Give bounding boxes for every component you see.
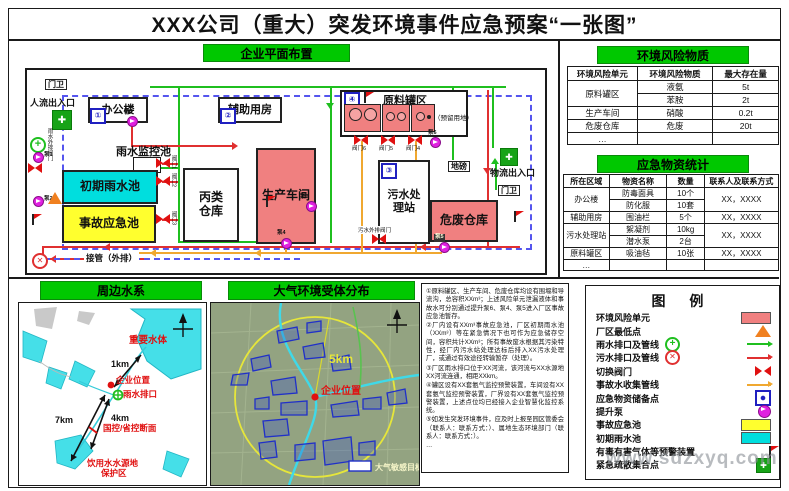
risk-cell: 5t (713, 81, 779, 94)
risk-cell: 20t (713, 120, 779, 133)
company-location-label: 企业位置 (115, 375, 151, 385)
legend-item: 提升泵 (586, 405, 779, 418)
outfall-dash-line (44, 258, 300, 260)
table-row: 原料罐区 吸油毡 10张 XX，XXXX (564, 248, 779, 260)
watermark: www.sdzxyq.com (606, 448, 778, 470)
distance-1km-label: 1km (111, 359, 129, 369)
pump-icon (281, 238, 292, 249)
supplies-cell (704, 260, 778, 271)
air-map-header: 大气环境受体分布 (228, 281, 415, 300)
sewage-outlet-icon: ✕ (32, 253, 48, 269)
supplies-cell: 围油栏 (609, 212, 667, 224)
page-title-bar: XXX公司（重大）突发环境事件应急预案“一张图” (8, 8, 781, 40)
drinking-water-label-1: 饮用水水源地 (86, 458, 139, 468)
valve6-label: 阀门6 (352, 147, 366, 153)
sewage-line-arrow-icon (747, 357, 771, 359)
risk-cell: 液氨 (637, 81, 713, 94)
risk-unit-swatch (741, 312, 771, 324)
rain-pipe-v4 (492, 86, 494, 148)
risk-table: 环境风险单元 环境风险物质 最大存在量 原料罐区 液氨 5t 苯胺 2t 生产车… (567, 66, 779, 145)
initial-rain-pool: 初期雨水池 (62, 170, 158, 204)
risk-cell: 生产车间 (568, 107, 638, 120)
pump4-label: 泵4 (277, 231, 286, 237)
weighbridge-label: 地磅 (448, 161, 470, 172)
switch-valve-icon (381, 135, 395, 145)
note-item: ⑤如发生突发环境事件，应及时上报至园区管委会（联系人：联系方式：）、属地生态环境… (426, 416, 564, 441)
table-row: … (568, 133, 779, 145)
supplies-point-icon: ③ (381, 163, 397, 179)
rain-line-arrow-icon (747, 343, 771, 345)
risk-cell (637, 133, 713, 145)
control-section-label: 国控/省控断面 (103, 423, 157, 433)
company-location-label: 企业位置 (320, 384, 361, 397)
legend-item: 环境风险单元 (586, 311, 779, 324)
rain-arrow-icon (491, 158, 499, 164)
rain-arrow-icon (326, 103, 334, 109)
supplies-cell: 10张 (667, 248, 704, 260)
switch-valve-icon (156, 158, 170, 168)
drinking-water-label-2: 保护区 (100, 468, 127, 478)
rain-outlet-icon: + (30, 137, 46, 153)
note-item: … (426, 442, 564, 450)
supplies-cell: XX，XXXX (704, 224, 778, 248)
sewage-out-valve-label: 污水外排阀门 (358, 226, 391, 234)
supplies-cell (667, 260, 704, 271)
people-entrance-label: 人流出入口 (30, 96, 75, 109)
supplies-cell: 10套 (667, 200, 704, 212)
reserved-land-label: （预留用地） (434, 112, 473, 122)
supplies-cell: 吸油毡 (609, 248, 667, 260)
switch-valve-icon (28, 163, 42, 173)
radius-5km-label: 5km (329, 352, 353, 366)
pump-icon (439, 242, 450, 253)
supplies-point-icon: ② (220, 108, 236, 124)
note-item: ④罐区设有XX套氨气监控预警装置，车间设有XX套氨气监控预警装置，厂界设有XX套… (426, 382, 564, 415)
lowest-point-icon (48, 192, 62, 204)
table-row: 生产车间 硝酸 0.2t (568, 107, 779, 120)
tank-circle (349, 108, 362, 121)
supplies-col: 物资名称 (609, 175, 667, 188)
accident-pool-swatch (741, 419, 771, 431)
rain-pipe-v2 (330, 86, 332, 243)
tank-group-1 (344, 104, 381, 132)
water-map-title: 周边水系 (97, 282, 145, 299)
air-map-svg: 企业位置 5km 大气敏感目标 (211, 303, 419, 485)
gatehouse-1-label: 门卫 (45, 79, 67, 90)
risk-col-amount: 最大存在量 (713, 67, 779, 81)
tank-group-3 (411, 104, 435, 132)
air-map: 企业位置 5km 大气敏感目标 (210, 302, 420, 486)
logistics-entrance-label: 物流出入口 (490, 166, 535, 179)
legend-item: 污水排口及管线 ✕ (586, 351, 779, 364)
important-water-label: 重要水体 (129, 334, 168, 346)
note-item: ①原料罐区、生产车间、危废仓库均设有围堰和导流沟，总容积XXm³；上述风险单元泄… (426, 288, 564, 321)
legend-item: 雨水排口及管线 + (586, 338, 779, 351)
supplies-cell: 防毒面具 (609, 188, 667, 200)
supplies-col: 数量 (667, 175, 704, 188)
legend-item: 事故应急池 (586, 418, 779, 431)
sewage-outlet-icon: ✕ (665, 350, 680, 365)
rain-outlet-label: 雨水排口 (123, 389, 157, 399)
legend-item: 初期雨水池 (586, 432, 779, 445)
accident-pool: 事故应急池 (62, 205, 156, 243)
pump5-label: 泵5 (434, 234, 445, 242)
supplies-cell: XX，XXXX (704, 212, 778, 224)
gas-warning-flag-icon (266, 196, 268, 207)
distance-4km-label: 4km (111, 413, 129, 423)
switch-valve-icon (156, 176, 170, 186)
lowest-point-icon (755, 325, 771, 337)
supplies-cell: 辅助用房 (564, 212, 610, 224)
pump-icon (430, 137, 441, 148)
table-row: 危废仓库 危废 20t (568, 120, 779, 133)
risk-cell: 硝酸 (637, 107, 713, 120)
tank-circle (416, 112, 425, 121)
supplies-cell: 10个 (667, 188, 704, 200)
supplies-table-header: 应急物资统计 (597, 155, 749, 173)
supplies-cell: 絮凝剂 (609, 224, 667, 236)
supplies-cell: XX，XXXX (704, 188, 778, 212)
pump6-label: 泵6 (428, 131, 437, 137)
risk-cell (713, 133, 779, 145)
distance-7km-label: 7km (55, 415, 73, 425)
pump3-label: 泵3 (300, 195, 309, 201)
supplies-table: 所在区域 物资名称 数量 联系人及联系方式 办公楼 防毒面具 10个 XX，XX… (563, 174, 779, 271)
page-title: XXX公司（重大）突发环境事件应急预案“一张图” (151, 9, 637, 39)
accident-arrow-icon (255, 249, 261, 257)
pump-icon (33, 196, 44, 207)
gatehouse-2-label: 门卫 (498, 185, 520, 196)
notes-panel: ①原料罐区、生产车间、危废仓库均设有围堰和导流沟，总容积XXm³；上述风险单元泄… (421, 283, 569, 473)
accident-pipe-v6 (361, 141, 363, 253)
supplies-table-title: 应急物资统计 (637, 156, 709, 173)
pump-icon (33, 152, 44, 163)
accident-line-arrow-icon (747, 384, 771, 386)
pump7-label: 泵7 (124, 110, 133, 116)
risk-cell: 苯胺 (637, 94, 713, 107)
tank-dot (427, 115, 431, 119)
tank-circle (364, 108, 377, 121)
supplies-cell: 办公楼 (564, 188, 610, 212)
lift-pump-icon (758, 405, 771, 418)
risk-cell: 0.2t (713, 107, 779, 120)
legend-item: 应急物资储备点 (586, 391, 779, 404)
plant-panel-header: 企业平面布置 (203, 44, 350, 62)
sewage-arrow-icon (232, 142, 238, 150)
accident-arrow-icon (150, 249, 156, 257)
table-row: 辅助用房 围油栏 5个 XX，XXXX (564, 212, 779, 224)
company-dot (311, 393, 318, 400)
assembly-point-icon: ✚ (52, 110, 72, 130)
supplies-cell (609, 260, 667, 271)
pump-icon (306, 201, 317, 212)
poster-page: XXX公司（重大）突发环境事件应急预案“一张图” 企业平面布置 接管（ (0, 0, 789, 491)
legend-item: 切换阀门 (586, 365, 779, 378)
valve5-label: 阀门5 (379, 147, 393, 153)
switch-valve-icon (408, 135, 422, 145)
risk-cell: 危废仓库 (568, 120, 638, 133)
table-row: … (564, 260, 779, 271)
note-item: ③厂区雨水排口位于XX河流，该河流与XX水源地XX河流连通，相距XXkm。 (426, 365, 564, 382)
supplies-cell: 5个 (667, 212, 704, 224)
legend-item: 厂区最低点 (586, 324, 779, 337)
supplies-cell: 2台 (667, 236, 704, 248)
supplies-cell: 潜水泵 (609, 236, 667, 248)
supplies-col: 所在区域 (564, 175, 610, 188)
bottom-section-divider (8, 277, 779, 279)
outfall-pipe-label: 接管（外排） (84, 252, 139, 264)
risk-table-title: 环境风险物质 (637, 47, 709, 64)
risk-cell: 危废 (637, 120, 713, 133)
gas-warning-flag-icon (514, 211, 516, 222)
assembly-point-icon: ✚ (500, 148, 518, 166)
table-row: 污水处理站 絮凝剂 10kg XX，XXXX (564, 224, 779, 236)
sewage-arrow-icon (104, 243, 110, 251)
table-row: 办公楼 防毒面具 10个 XX，XXXX (564, 188, 779, 200)
switch-valve-icon (755, 366, 771, 377)
valve3-label: 阀门3 (170, 211, 176, 225)
risk-table-header: 环境风险物质 (597, 46, 749, 64)
valve2-label: 阀门2 (170, 173, 176, 187)
switch-valve-icon (354, 135, 368, 145)
supplies-cell: XX，XXXX (704, 248, 778, 260)
gas-warning-flag-icon (32, 214, 34, 225)
accident-pipe-bottom (120, 252, 442, 254)
tank-circle (386, 112, 395, 121)
air-map-legend: 大气敏感目标 (349, 461, 419, 472)
risk-cell: … (568, 133, 638, 145)
tank-circle (397, 112, 406, 121)
supplies-cell: 原料罐区 (564, 248, 610, 260)
rain-pipe-v1 (178, 86, 180, 243)
valve4-label: 阀门4 (406, 147, 420, 153)
company-dot (108, 382, 115, 389)
valve1-label: 阀门1 (170, 155, 176, 169)
table-row: 原料罐区 液氨 5t (568, 81, 779, 94)
initial-rain-pool-swatch (741, 432, 771, 444)
pump-icon (127, 116, 138, 127)
risk-col-substance: 环境风险物质 (637, 67, 713, 81)
risk-col-unit: 环境风险单元 (568, 67, 638, 81)
water-map: 重要水体 企业位置 雨水排口 国控/省控断面 饮用水水源地 保护区 1km 4k… (18, 302, 207, 486)
supplies-col: 联系人及联系方式 (704, 175, 778, 188)
rain-out-valve-label: 雨水外排阀门 (46, 128, 52, 174)
air-map-legend-label: 大气敏感目标 (375, 462, 419, 472)
water-map-svg: 重要水体 企业位置 雨水排口 国控/省控断面 饮用水水源地 保护区 1km 4k… (19, 303, 206, 485)
supplies-cell: 污水处理站 (564, 224, 610, 248)
note-item: ②厂内设有XXm³事故应急池，厂区初期雨水池（XXm³）等在紧急情况下也可作为应… (426, 322, 564, 363)
right-column-divider (558, 40, 560, 278)
air-map-title: 大气环境受体分布 (273, 282, 369, 299)
supplies-cell: 防化服 (609, 200, 667, 212)
plant-panel-title: 企业平面布置 (240, 45, 312, 62)
supplies-cell: 10kg (667, 224, 704, 236)
supplies-point-icon (755, 390, 771, 406)
supplies-cell: … (564, 260, 610, 271)
risk-cell: 2t (713, 94, 779, 107)
risk-cell: 原料罐区 (568, 81, 638, 107)
legend-title: 图 例 (586, 286, 779, 311)
supplies-point-icon: ① (90, 108, 106, 124)
gas-warning-flag-icon (364, 92, 366, 103)
tank-group-2 (382, 104, 410, 132)
class-c-warehouse: 丙类 仓库 (183, 168, 239, 242)
switch-valve-icon (372, 234, 386, 244)
water-map-header: 周边水系 (40, 281, 202, 300)
switch-valve-icon (156, 214, 170, 224)
